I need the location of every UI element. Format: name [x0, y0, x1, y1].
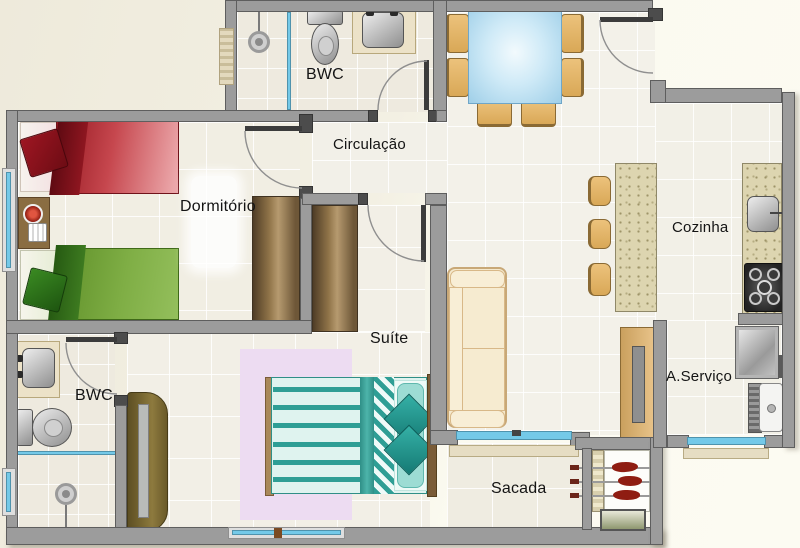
- floor-circulacao: [312, 122, 447, 193]
- bed-stripe: [273, 405, 361, 410]
- bar-stool: [588, 176, 611, 206]
- dining-chair: [446, 58, 469, 97]
- room-label-servico: A.Serviço: [666, 368, 732, 385]
- wall: [6, 110, 378, 122]
- alarm-clock: [23, 204, 43, 224]
- wall-right-outer: [782, 92, 795, 448]
- dining-chair: [561, 58, 584, 97]
- skewer-handle: [570, 493, 579, 498]
- wall: [300, 198, 312, 332]
- shower-head-dot: [62, 490, 70, 498]
- suite-door-leaf: [421, 205, 426, 262]
- servico-sill: [683, 448, 769, 459]
- window-glass: [6, 472, 11, 512]
- bwc-top-door-leaf: [424, 60, 429, 110]
- wall: [6, 320, 312, 334]
- room-label-suite: Suíte: [370, 330, 408, 348]
- shaft-box: [600, 509, 646, 531]
- wall: [430, 430, 458, 445]
- stove-burner: [749, 268, 762, 281]
- wall: [665, 88, 782, 103]
- wall: [425, 193, 447, 205]
- sofa-armrest: [450, 410, 505, 428]
- entry-door-leaf: [600, 17, 653, 22]
- kitchen-sink: [747, 196, 779, 232]
- tv-icon: [632, 346, 645, 423]
- bed-stripe: [273, 460, 361, 465]
- bed-runner: [360, 377, 374, 494]
- room-label-bwc-top: BWC: [306, 66, 344, 84]
- sofa-cushion: [462, 348, 505, 411]
- wall: [436, 110, 447, 122]
- shower-glass-partition: [17, 451, 117, 455]
- bed-stripe: [273, 442, 361, 447]
- sofa-cushion: [462, 287, 505, 350]
- wall: [738, 313, 788, 325]
- toilet-tank-bottom: [16, 409, 33, 446]
- bar-stool: [588, 219, 611, 249]
- toilet-bowl-inner: [44, 419, 63, 437]
- cup: [28, 223, 47, 242]
- wall: [433, 0, 447, 122]
- door-jamb: [368, 110, 378, 122]
- toilet-bowl-inner: [318, 36, 334, 56]
- skewer-handle: [570, 479, 579, 484]
- bed-stripe: [273, 423, 361, 428]
- wall: [115, 405, 127, 530]
- vent-window: [219, 28, 234, 85]
- vanity-sink-bottom: [22, 348, 55, 388]
- shower-arm: [258, 12, 260, 33]
- shower-glass-partition: [287, 12, 291, 110]
- room-label-dormitorio: Dormitório: [180, 198, 256, 216]
- suite-window-glass: [232, 530, 341, 535]
- stove-burner-center: [757, 280, 772, 295]
- wall-suite-living: [430, 205, 447, 445]
- dining-chair: [477, 100, 512, 127]
- dormitorio-highlight: [191, 176, 237, 268]
- dining-table: [468, 10, 562, 104]
- room-label-cozinha: Cozinha: [672, 219, 728, 236]
- sofa-armrest: [450, 270, 505, 288]
- room-label-sacada: Sacada: [491, 480, 546, 498]
- dining-chair: [446, 14, 469, 53]
- wardrobe-dormitorio: [252, 196, 300, 332]
- window-handle: [274, 528, 282, 538]
- shower-head-dot: [255, 38, 263, 46]
- closet-slat: [138, 404, 149, 518]
- wardrobe-suite: [312, 205, 358, 332]
- bar-stool: [588, 263, 611, 296]
- wall: [650, 80, 666, 103]
- servico-window-glass: [687, 437, 766, 445]
- stove-burner: [767, 268, 780, 281]
- washing-machine: [735, 326, 779, 379]
- door-jamb: [358, 193, 368, 205]
- dormitorio-door-leaf: [245, 126, 302, 131]
- window-glass: [6, 172, 11, 268]
- floor-plan: BWC Circulação Dormitório Cozinha Suíte …: [0, 0, 800, 548]
- stove-burner: [767, 292, 780, 305]
- bed-stripe: [273, 477, 361, 482]
- dining-chair: [521, 100, 556, 127]
- skewer-handle: [570, 465, 579, 470]
- room-label-circulacao: Circulação: [333, 136, 406, 153]
- wall: [650, 437, 663, 545]
- room-label-bwc-bottom: BWC: [75, 387, 113, 405]
- sacada-sill: [449, 445, 579, 457]
- sliding-door-handle: [512, 430, 521, 436]
- dining-chair: [561, 14, 584, 53]
- laundry-tank-drain: [767, 404, 776, 413]
- wall: [667, 435, 689, 448]
- vanity-sink-top: [362, 12, 404, 48]
- wall: [653, 320, 667, 448]
- bed-stripe: [273, 387, 361, 392]
- wall: [302, 193, 360, 205]
- bwc-bottom-door-leaf: [66, 337, 117, 342]
- kitchen-island: [615, 163, 657, 312]
- bed-hatch-band: [374, 377, 394, 494]
- wall: [582, 448, 592, 530]
